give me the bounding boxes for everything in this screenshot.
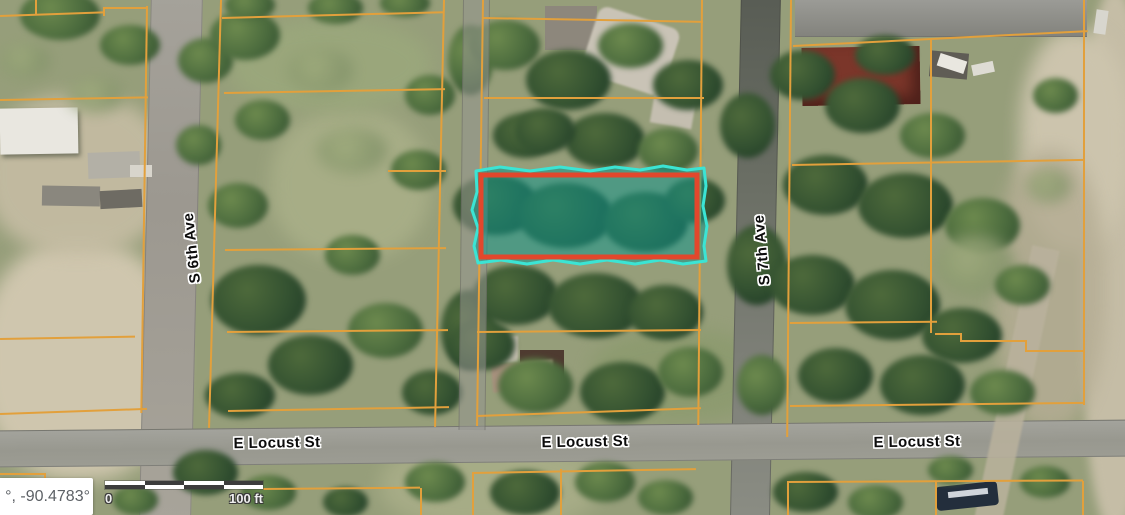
parcel-boundary-line: [0, 96, 148, 101]
parcel-boundary-line: [930, 40, 932, 333]
parcel-boundary-line: [1083, 0, 1085, 405]
parcel-boundary-line: [483, 17, 703, 23]
scale-distance-label: 100 ft: [229, 491, 263, 506]
parcel-boundary-line: [227, 329, 448, 333]
parcel-boundary-line: [790, 321, 937, 324]
parcel-boundary-line: [790, 402, 1084, 407]
parcel-boundary-line: [793, 30, 1088, 47]
parcel-boundary-line: [35, 0, 37, 15]
coordinates-text: °, -90.4783°: [5, 488, 90, 506]
street-label-e-locust-east: E Locust St: [873, 433, 960, 452]
parcel-boundary-line: [420, 488, 422, 515]
parcel-boundary-line: [263, 487, 420, 490]
parcel-boundary-line: [103, 7, 105, 16]
parcel-boundary-line: [228, 406, 449, 412]
parcel-boundary-line: [0, 336, 135, 340]
parcel-boundary-line: [0, 408, 147, 415]
parcel-boundary-line: [0, 11, 103, 17]
parcel-boundary-line: [472, 468, 696, 474]
parcel-boundary-line: [560, 469, 562, 515]
parcel-boundary-line: [225, 247, 446, 251]
parcel-boundary-line: [208, 0, 222, 428]
parcel-boundary-line: [484, 97, 704, 99]
selected-parcel[interactable]: [455, 148, 725, 278]
parcel-boundary-line: [103, 7, 148, 9]
parcel-boundary-line: [472, 472, 474, 515]
parcel-boundary-line: [140, 6, 148, 413]
parcel-boundary-line: [786, 0, 792, 437]
parcel-boundary-line: [787, 481, 789, 515]
coordinates-readout: °, -90.4783°: [0, 478, 93, 515]
selected-parcel-cyan-outline: [472, 166, 707, 264]
parcel-boundary-line: [477, 329, 701, 333]
parcel-boundary-line: [935, 333, 962, 335]
street-label-e-locust-center: E Locust St: [541, 433, 628, 452]
scale-zero-label: 0: [105, 491, 112, 506]
parcel-boundary-line: [434, 0, 445, 427]
map-canvas[interactable]: S 6th Ave S 7th Ave E Locust St E Locust…: [0, 0, 1125, 515]
street-label-e-locust-west: E Locust St: [233, 434, 320, 453]
parcel-boundary-line: [388, 170, 446, 172]
parcel-boundary-line: [960, 340, 1026, 342]
scale-bar-segments: [105, 481, 263, 489]
parcel-boundary-line: [1025, 350, 1083, 352]
parcel-boundary-line: [477, 407, 701, 417]
parcel-boundary-line: [935, 481, 937, 515]
parcel-boundary-line: [222, 11, 444, 19]
map-scale-bar: 0 100 ft: [105, 481, 263, 506]
parcel-boundary-line: [0, 473, 44, 475]
parcel-boundary-line: [792, 159, 1085, 166]
parcel-boundary-line: [224, 88, 445, 94]
parcel-boundary-line: [1082, 481, 1084, 515]
